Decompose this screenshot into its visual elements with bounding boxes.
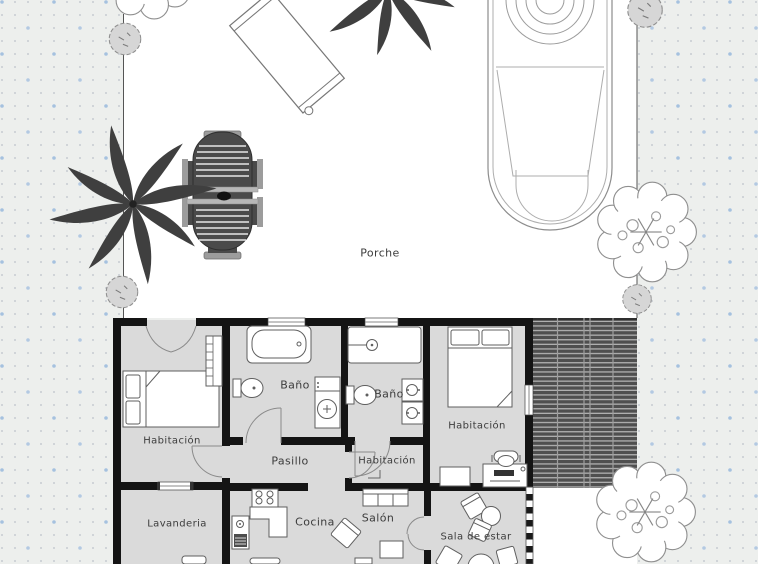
dresser-icon [440,467,470,486]
wardrobe-icon [206,336,222,386]
room-label-living-room: Salón [362,512,394,525]
room-label-bathroom-1: Baño [280,379,310,392]
sliding-glass-door [526,487,533,564]
toilet-icon [233,379,263,398]
bush-icon [623,285,652,314]
toilet-icon [346,386,376,405]
laundry-sink-icon [232,516,249,549]
room-label-hallway: Pasillo [271,455,308,468]
room-label-porch: Porche [360,247,399,260]
room-label-laundry: Lavanderia [147,519,207,530]
floor-plan: Porche Habitación Baño Baño Habitación P… [0,0,758,564]
room-label-bedroom-middle: Habitación [358,456,416,467]
side-table-icon [355,558,372,564]
sofa-icon [363,489,408,506]
laundry-machine-icon [182,556,206,564]
double-sink-icon [402,379,423,424]
shower-icon [348,327,421,363]
room-label-kitchen: Cocina [295,516,335,529]
floor-plan-drawing [0,0,758,564]
room-label-bedroom-right: Habitación [448,421,506,432]
coffee-table-icon [380,541,403,558]
bush-icon [106,276,138,308]
room-label-bathroom-2: Baño [374,388,404,401]
bathtub-icon [247,326,311,363]
stove-icon [252,489,278,507]
laundry-machine-icon [250,558,280,564]
pool-icon [488,0,612,230]
room-label-bedroom-left: Habitación [143,436,201,447]
bush-icon [109,23,141,55]
bed-icon [448,327,512,407]
wood-deck [533,318,637,488]
bed-icon [123,371,219,427]
desk-icon [483,464,527,487]
washbasin-icon [315,377,340,428]
room-label-sitting-room: Sala de estar [441,532,512,543]
